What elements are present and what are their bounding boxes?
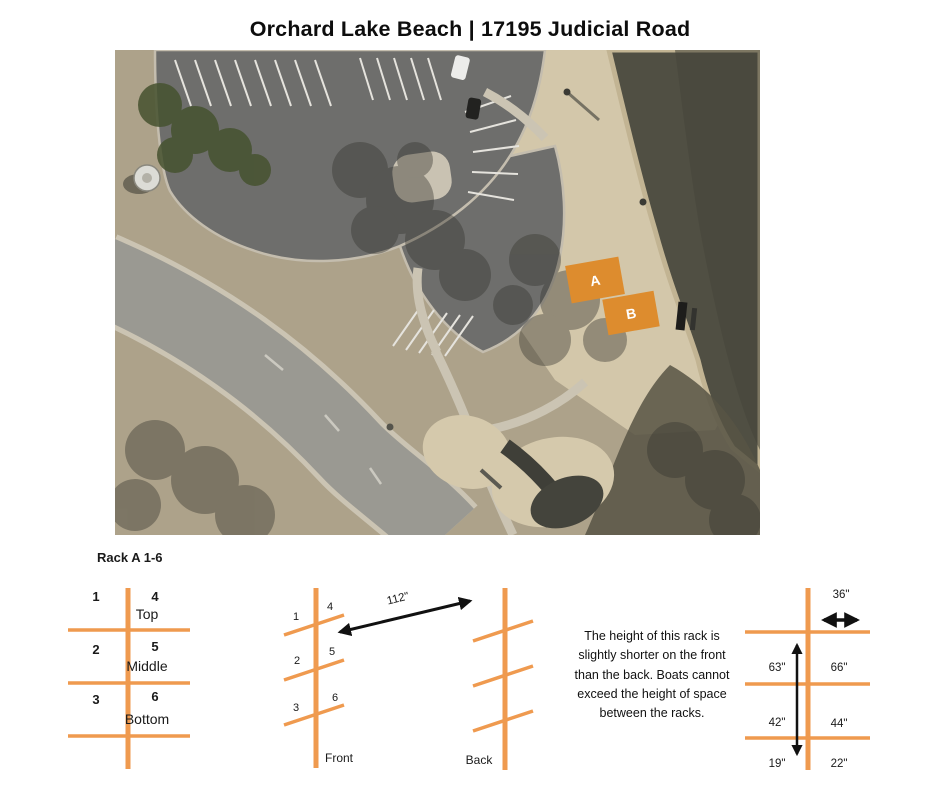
front-post-label: Front [325,751,353,765]
side-view-slot-5: 5 [329,646,335,658]
measurement-22: 22" [831,758,848,770]
measurement-63: 63" [769,662,786,674]
side-view-slot-2: 2 [294,655,300,667]
measurement-44: 44" [831,718,848,730]
back-post-label: Back [466,753,493,767]
measurement-66: 66" [831,662,848,674]
measurement-42: 42" [769,717,786,729]
side-view-slot-1: 1 [293,611,299,623]
front-view-slot-5: 5 [151,639,158,654]
depth-arrow [340,601,470,632]
aerial-photo-canvas: A B [115,50,760,535]
measurement-36: 36" [833,589,850,601]
flyer-page: Orchard Lake Beach | 17195 Judicial Road [0,0,940,788]
rack-note: The height of this rack is slightly shor… [567,627,737,723]
side-view-back-post [473,588,533,770]
level-label-middle: Middle [126,658,167,674]
beach-pole-2 [640,199,647,206]
level-label-top: Top [136,606,159,622]
side-view-slot-6: 6 [332,692,338,704]
side-view-slot-3: 3 [293,702,299,714]
front-view-rack [68,588,190,769]
measurement-rack [745,588,870,770]
measurement-19: 19" [769,758,786,770]
front-view-slot-2: 2 [92,642,99,657]
front-view-slot-3: 3 [92,692,99,707]
front-view-slot-4: 4 [151,589,158,604]
aerial-photo: A B [115,50,760,535]
level-label-bottom: Bottom [125,711,169,727]
side-view-slot-4: 4 [327,601,333,613]
front-view-slot-6: 6 [151,689,158,704]
page-title: Orchard Lake Beach | 17195 Judicial Road [0,17,940,42]
front-view-slot-1: 1 [92,589,99,604]
manhole [387,424,394,431]
